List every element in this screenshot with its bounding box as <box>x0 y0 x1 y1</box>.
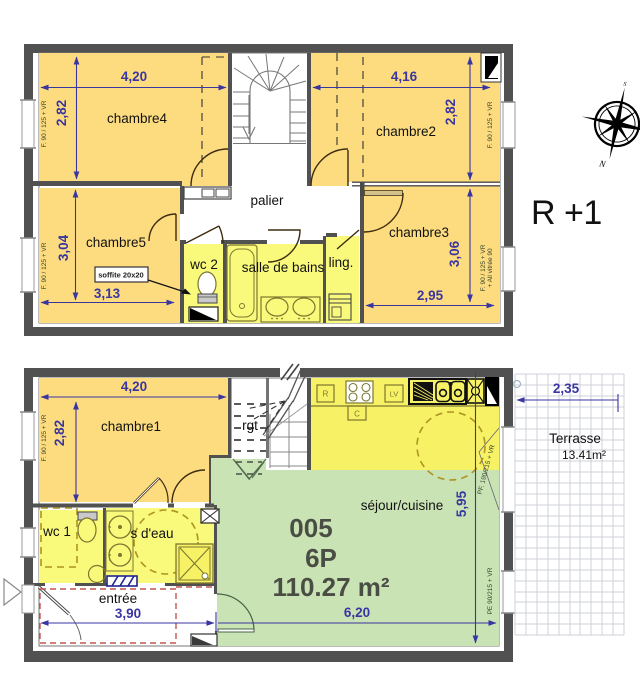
svg-text:6,20: 6,20 <box>344 605 370 620</box>
svg-text:6P: 6P <box>305 543 337 573</box>
svg-text:2,95: 2,95 <box>417 288 444 303</box>
svg-text:3,13: 3,13 <box>94 286 121 301</box>
svg-text:s d'eau: s d'eau <box>130 526 173 541</box>
svg-text:+ All vitrée 90: + All vitrée 90 <box>487 248 494 288</box>
svg-text:rgt: rgt <box>242 418 258 433</box>
svg-text:005: 005 <box>289 513 332 543</box>
svg-text:2,82: 2,82 <box>443 99 458 125</box>
svg-text:F. 90 / 125 + VR: F. 90 / 125 + VR <box>487 101 494 148</box>
svg-text:13.41m²: 13.41m² <box>562 448 606 462</box>
svg-text:chambre3: chambre3 <box>389 225 449 240</box>
svg-text:3,90: 3,90 <box>115 606 141 621</box>
svg-text:3,06: 3,06 <box>447 240 462 267</box>
svg-text:3,04: 3,04 <box>56 234 71 261</box>
svg-text:chambre4: chambre4 <box>107 111 168 126</box>
svg-text:S: S <box>623 82 627 88</box>
svg-text:R +1: R +1 <box>531 194 602 232</box>
svg-text:chambre2: chambre2 <box>376 124 436 139</box>
svg-text:Terrasse: Terrasse <box>549 431 601 446</box>
svg-text:chambre1: chambre1 <box>101 419 161 434</box>
svg-text:110.27 m²: 110.27 m² <box>272 572 389 602</box>
svg-text:palier: palier <box>250 193 284 208</box>
svg-text:4,20: 4,20 <box>121 379 147 394</box>
svg-text:R: R <box>323 390 329 399</box>
svg-text:entrée: entrée <box>99 591 137 606</box>
svg-text:F. 90 / 125 + VR: F. 90 / 125 + VR <box>41 242 48 289</box>
svg-text:ling.: ling. <box>329 255 354 270</box>
svg-text:PE 90/215 + VR: PE 90/215 + VR <box>487 567 494 614</box>
svg-text:F. 90 / 125 + VR: F. 90 / 125 + VR <box>41 100 48 147</box>
svg-text:soffite 20x20: soffite 20x20 <box>98 271 143 280</box>
svg-text:2,35: 2,35 <box>553 381 580 396</box>
svg-text:N: N <box>597 158 607 169</box>
svg-text:2,82: 2,82 <box>52 420 67 446</box>
svg-text:wc 2: wc 2 <box>189 257 218 272</box>
svg-text:C: C <box>354 410 360 419</box>
svg-text:5,95: 5,95 <box>454 490 469 517</box>
svg-text:4,20: 4,20 <box>121 69 147 84</box>
svg-text:LV: LV <box>390 390 399 399</box>
svg-text:2,82: 2,82 <box>54 100 69 126</box>
svg-text:salle de bains: salle de bains <box>242 260 325 275</box>
svg-text:chambre5: chambre5 <box>86 235 146 250</box>
svg-text:F. 90 / 125 + VR: F. 90 / 125 + VR <box>41 414 48 461</box>
svg-text:séjour/cuisine: séjour/cuisine <box>361 498 444 513</box>
svg-text:4,16: 4,16 <box>391 69 418 84</box>
svg-text:F. 90 / 125 + VR: F. 90 / 125 + VR <box>480 244 487 291</box>
svg-text:wc 1: wc 1 <box>42 524 71 539</box>
